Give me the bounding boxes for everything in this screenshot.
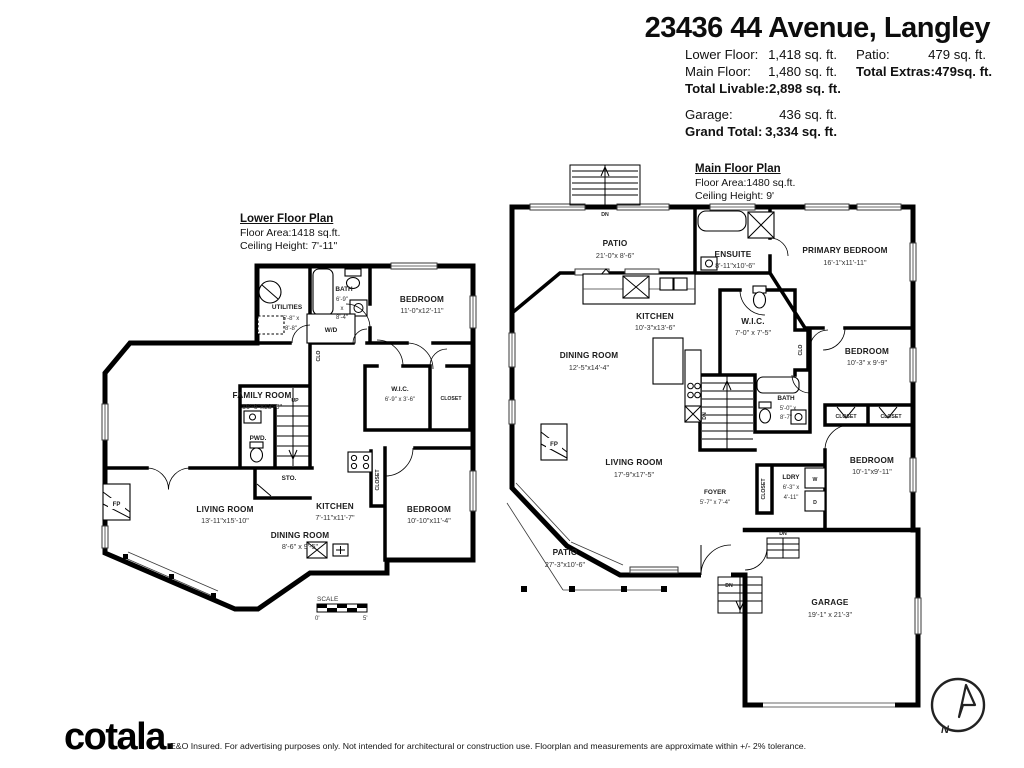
stat-value: 1,480 sq. ft. (768, 63, 837, 80)
main-bath-label: BATH (777, 395, 795, 402)
lower-utilities-label: UTILITIES (272, 304, 303, 311)
lower-utilities-dims1: 5'-8" x (283, 316, 300, 322)
lower-bath-dims1: 6'-9" (336, 297, 348, 303)
stat-value: 1,418 sq. ft. (768, 46, 837, 63)
main-closet2-label: CLOSET (880, 414, 902, 420)
floorplan-page: { "header": { "title": "23436 44 Avenue,… (0, 0, 1024, 768)
main-bedroom-lower-dims: 10'-1"x9'-11" (852, 467, 892, 476)
main-kitchen-label: KITCHEN (636, 312, 674, 321)
bath-sink-icon (791, 410, 806, 424)
page-title: 23436 44 Avenue, Langley (645, 12, 990, 45)
stat-garage: Garage: 436 sq. ft. (685, 106, 837, 123)
main-foyer-closet-label: CLOSET (761, 478, 767, 500)
spacer (685, 97, 837, 106)
stat-main-floor: Main Floor: 1,480 sq. ft. (685, 63, 837, 80)
lower-bath-dims2: x (341, 306, 344, 312)
lower-wd-label: W/D (325, 327, 338, 334)
lower-plan-header: Lower Floor Plan Floor Area:1418 sq.ft. … (240, 213, 340, 253)
main-dn-top-label: DN (601, 212, 609, 218)
area-summary-left: Lower Floor: 1,418 sq. ft. Main Floor: 1… (685, 46, 837, 140)
main-patio-lower-label: PATIO (553, 548, 578, 557)
disclaimer-text: E&O Insured. For advertising purposes on… (170, 741, 806, 751)
lower-family-room-label: FAMILY ROOM (232, 391, 291, 400)
lower-bedroom-lower-dims: 10'-10"x11'-4" (407, 516, 451, 525)
lower-bedroom-lower-label: BEDROOM (407, 505, 451, 514)
toilet-tank-icon (345, 269, 361, 276)
stat-value: 479sq. ft. (935, 63, 992, 80)
main-foyer-label: FOYER (704, 489, 726, 496)
lower-closet-label: CLOSET (440, 396, 462, 402)
lower-plan-title: Lower Floor Plan (240, 213, 340, 225)
main-dining-room-label: DINING ROOM (560, 351, 619, 360)
lower-kitchen-dims: 7'-11"x11'-7" (315, 513, 355, 522)
stat-patio: Patio: 479 sq. ft. (856, 46, 986, 63)
stat-total-livable: Total Livable: 2,898 sq. ft. (685, 80, 837, 97)
scale-label: SCALE (317, 596, 339, 603)
main-dn-porch-label: DN (725, 583, 733, 589)
main-bedroom-lower-label: BEDROOM (850, 456, 894, 465)
kitchen-island (653, 338, 683, 384)
stat-lower-floor: Lower Floor: 1,418 sq. ft. (685, 46, 837, 63)
main-ensuite-dims: 8'-11"x10'-6" (715, 261, 755, 270)
area-summary-right: Patio: 479 sq. ft. Total Extras: 479sq. … (856, 46, 986, 80)
lower-kitchen-label: KITCHEN (316, 502, 354, 511)
cotala-logo: cotala. (64, 716, 174, 759)
powder-sink-icon (244, 411, 261, 423)
main-ldry-dims1: 6'-3" x (783, 485, 800, 491)
lower-bedroom-upper-dims: 11'-0"x12'-11" (400, 306, 444, 315)
stat-total-extras: Total Extras: 479sq. ft. (856, 63, 986, 80)
stat-label: Grand Total: (685, 123, 762, 140)
lower-fp-label: FP (113, 502, 121, 508)
lower-family-room-dims: 16'-6"x13'-0" (242, 402, 283, 411)
stat-value: 2,898 sq. ft. (769, 80, 841, 97)
stat-value: 479 sq. ft. (928, 46, 986, 63)
lower-utilities-dims2: 8'-8" (285, 326, 297, 332)
main-patio-lower-dims: 27'-3"x10'-6" (545, 560, 586, 569)
stat-label: Garage: (685, 106, 733, 123)
main-garage-dims: 19'-1" x 21'-3" (808, 610, 853, 619)
main-ensuite-label: ENSUITE (715, 250, 752, 259)
main-bedroom-mid-dims: 10'-3" x 9'-9" (847, 358, 888, 367)
stat-label: Main Floor: (685, 63, 751, 80)
main-foyer-dims: 5'-7" x 7'-4" (700, 500, 730, 506)
main-ldry-dims2: 4'-11" (784, 495, 799, 501)
lower-dining-room-dims: 8'-6" x 9'-5" (282, 542, 319, 551)
lower-living-room-label: LIVING ROOM (196, 505, 253, 514)
stat-label: Total Livable: (685, 80, 769, 97)
main-bath-dims2: 8'-7" (780, 415, 792, 421)
main-bedroom-mid-label: BEDROOM (845, 347, 889, 356)
main-primary-bedroom-dims: 16'-1"x11'-11" (823, 258, 867, 267)
lower-plan-ceiling-height: Ceiling Height: 7'-11" (240, 240, 340, 253)
ensuite-toilet-icon (754, 292, 766, 308)
main-floor-plan-drawing: PATIO 21'-0"x 8'-6" ENSUITE 8'-11"x10'-6… (505, 158, 935, 713)
bath-toilet-icon (760, 409, 771, 423)
main-fp-label: FP (550, 442, 558, 448)
lower-living-room-dims: 13'-11"x15'-10" (201, 516, 249, 525)
ensuite-tub-icon (698, 211, 746, 231)
lower-wic-dims: 6'-9" x 3'-6" (385, 397, 415, 403)
lower-up-label: UP (291, 398, 299, 404)
compass-icon: N (923, 665, 1013, 760)
main-dining-room-dims: 12'-5"x14'-4" (569, 363, 610, 372)
lower-sto-label: STO. (282, 475, 297, 482)
compass-north-label: N (941, 724, 950, 736)
lower-plan-floor-area: Floor Area:1418 sq.ft. (240, 227, 340, 240)
lower-bath-label: BATH (335, 286, 353, 293)
main-dryer-label: D (813, 500, 817, 506)
lower-pwd-label: PWD. (250, 435, 267, 442)
sink-bowl-left (660, 278, 673, 290)
main-washer-label: W (813, 477, 818, 483)
lower-bath-dims3: 8'-4" (336, 315, 348, 321)
main-clo-label: CLO (798, 345, 804, 356)
main-bath-dims1: 5'-0" x (780, 406, 797, 412)
main-living-room-dims: 17'-9"x17'-5" (614, 470, 655, 479)
main-living-room-label: LIVING ROOM (605, 458, 662, 467)
lower-floor-plan-drawing: FAMILY ROOM 16'-6"x13'-0" LIVING ROOM 13… (95, 256, 490, 621)
main-wic-dims: 7'-0" x 7'-5" (735, 328, 772, 337)
stat-grand-total: Grand Total: 3,334 sq. ft. (685, 123, 837, 140)
scale-max: 5' (363, 616, 367, 621)
compass-circle (932, 679, 984, 731)
bath-toilet-tank-icon (759, 402, 771, 408)
stat-label: Patio: (856, 46, 890, 63)
scale-min: 0' (315, 616, 319, 621)
scale-bar: SCALE 0' 5' (315, 596, 367, 621)
main-wic-label: W.I.C. (741, 317, 765, 326)
main-closet1-label: CLOSET (835, 414, 857, 420)
main-kitchen-dims: 10'-3"x13'-6" (635, 323, 676, 332)
main-ldry-label: LDRY (782, 474, 800, 481)
powder-toilet-icon (251, 448, 263, 462)
main-dn-stairs-label: DN (702, 412, 708, 420)
stat-label: Lower Floor: (685, 46, 758, 63)
powder-toilet-tank-icon (250, 442, 263, 448)
stove-icon (348, 452, 372, 472)
furnace-icon (258, 316, 284, 334)
stat-value: 3,334 sq. ft. (765, 123, 837, 140)
lower-closet-vertical-label: CLOSET (375, 469, 381, 491)
main-primary-bedroom-label: PRIMARY BEDROOM (802, 246, 887, 255)
lower-wic-label: W.I.C. (391, 386, 409, 393)
stat-label: Total Extras: (856, 63, 935, 80)
main-patio-upper-label: PATIO (603, 239, 628, 248)
lower-bedroom-upper-label: BEDROOM (400, 295, 444, 304)
north-arrow-icon (959, 685, 975, 717)
stat-value: 436 sq. ft. (779, 106, 837, 123)
lower-clo-label: CLO (316, 351, 322, 362)
main-dn-garage-label: DN (779, 531, 787, 537)
main-garage-label: GARAGE (811, 598, 848, 607)
main-patio-upper-dims: 21'-0"x 8'-6" (596, 251, 635, 260)
sink-bowl-right (674, 278, 687, 290)
lower-dining-room-label: DINING ROOM (271, 531, 330, 540)
bathtub-icon (313, 269, 333, 315)
